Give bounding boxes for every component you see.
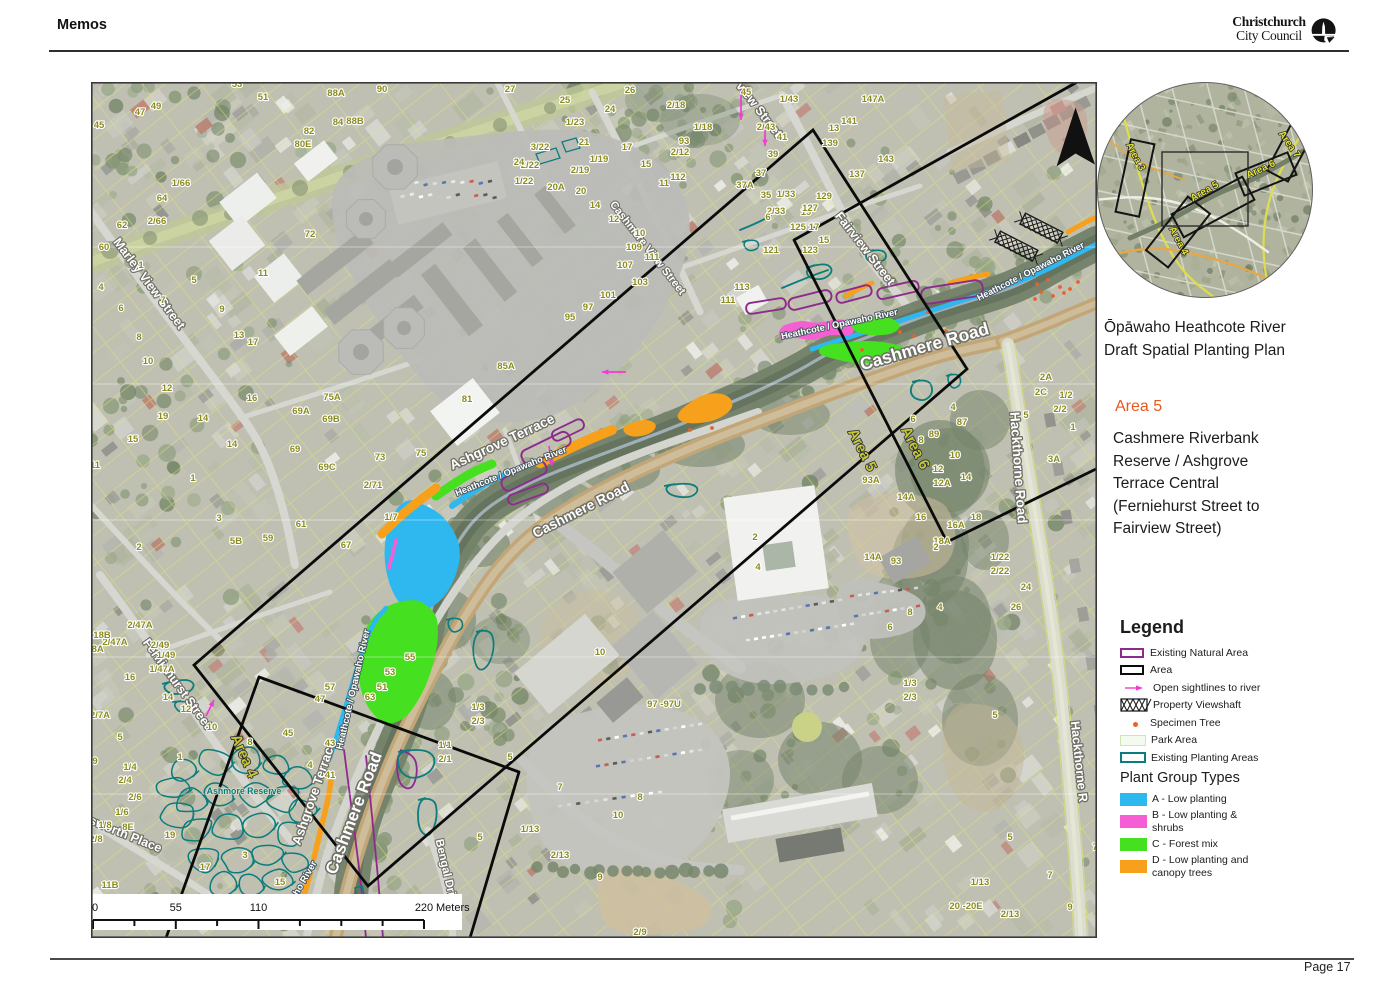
svg-text:2/7A: 2/7A [91, 710, 110, 721]
svg-text:2A: 2A [1040, 372, 1052, 383]
svg-text:51: 51 [258, 92, 269, 103]
svg-text:51: 51 [377, 682, 388, 693]
svg-text:60: 60 [99, 242, 110, 253]
svg-text:35: 35 [761, 190, 772, 201]
svg-text:1/8: 1/8 [98, 820, 111, 831]
svg-text:14A: 14A [864, 552, 882, 563]
svg-text:1: 1 [177, 752, 183, 763]
svg-text:10: 10 [595, 647, 606, 658]
svg-text:111: 111 [645, 252, 661, 263]
svg-text:121: 121 [763, 245, 780, 256]
svg-text:18: 18 [971, 512, 982, 523]
svg-text:80E: 80E [295, 139, 312, 150]
svg-text:2/47A: 2/47A [127, 620, 152, 631]
svg-text:7: 7 [1047, 870, 1052, 881]
svg-text:69A: 69A [292, 406, 310, 417]
svg-text:1/4: 1/4 [123, 762, 137, 773]
svg-text:3: 3 [216, 513, 221, 524]
svg-text:64: 64 [157, 193, 168, 204]
svg-text:69: 69 [290, 444, 301, 455]
svg-text:141: 141 [841, 116, 858, 127]
svg-text:55: 55 [405, 652, 416, 663]
svg-text:26: 26 [625, 85, 636, 96]
svg-text:2/71: 2/71 [364, 480, 383, 491]
svg-text:1/18: 1/18 [694, 122, 713, 133]
svg-text:17: 17 [200, 862, 211, 873]
svg-text:93: 93 [679, 136, 690, 147]
svg-text:14: 14 [961, 472, 972, 483]
svg-text:1/6: 1/6 [115, 807, 128, 818]
svg-text:85A: 85A [497, 361, 515, 372]
svg-text:8: 8 [907, 607, 912, 618]
svg-text:20 -20E: 20 -20E [949, 901, 982, 912]
svg-text:12: 12 [162, 383, 173, 394]
svg-text:59: 59 [263, 533, 274, 544]
svg-text:2/4: 2/4 [118, 775, 132, 786]
svg-text:2/19: 2/19 [571, 165, 590, 176]
svg-text:8E: 8E [122, 822, 134, 833]
svg-text:2/2: 2/2 [1053, 404, 1066, 415]
svg-text:97: 97 [583, 302, 594, 313]
svg-text:12: 12 [181, 704, 192, 715]
svg-text:55: 55 [170, 902, 182, 914]
svg-text:84: 84 [333, 117, 344, 128]
svg-text:13: 13 [234, 330, 245, 341]
svg-text:16: 16 [125, 672, 136, 683]
svg-text:3A: 3A [1048, 454, 1060, 465]
svg-text:2C: 2C [1035, 387, 1047, 398]
svg-text:37A: 37A [736, 180, 754, 191]
svg-text:12: 12 [609, 214, 620, 225]
svg-text:1/22: 1/22 [515, 176, 534, 187]
svg-text:1: 1 [138, 260, 144, 271]
svg-text:1/33: 1/33 [777, 189, 796, 200]
svg-text:17: 17 [809, 222, 820, 233]
svg-text:2: 2 [933, 542, 938, 553]
svg-text:8: 8 [918, 435, 923, 446]
svg-text:6: 6 [887, 622, 892, 633]
svg-text:75: 75 [416, 448, 427, 459]
svg-text:8: 8 [136, 332, 141, 343]
svg-text:8: 8 [247, 737, 252, 748]
svg-text:125: 125 [790, 222, 807, 233]
svg-text:4: 4 [307, 760, 313, 771]
svg-text:47: 47 [135, 107, 146, 118]
svg-text:1/13: 1/13 [521, 824, 540, 835]
svg-text:5B: 5B [230, 536, 242, 547]
svg-text:82: 82 [304, 126, 315, 137]
svg-text:9: 9 [1067, 902, 1072, 913]
svg-text:37: 37 [756, 168, 767, 179]
svg-text:15: 15 [641, 159, 652, 170]
svg-text:69C: 69C [318, 462, 336, 473]
svg-text:10: 10 [950, 450, 961, 461]
svg-text:18B: 18B [93, 630, 111, 641]
svg-text:69B: 69B [322, 414, 340, 425]
svg-text:14: 14 [590, 200, 601, 211]
svg-text:13: 13 [829, 123, 840, 134]
svg-text:87: 87 [957, 417, 968, 428]
svg-text:9: 9 [92, 756, 97, 767]
svg-text:97 -97U: 97 -97U [647, 699, 681, 710]
svg-text:Ashmore Reserve: Ashmore Reserve [207, 786, 282, 796]
svg-text:147A: 147A [862, 94, 885, 105]
svg-text:16: 16 [247, 393, 258, 404]
svg-text:47: 47 [315, 694, 326, 705]
svg-text:113: 113 [734, 282, 749, 293]
svg-text:1/22: 1/22 [991, 552, 1010, 563]
svg-text:16A: 16A [947, 520, 965, 531]
svg-text:88B: 88B [346, 116, 364, 127]
svg-text:10: 10 [207, 722, 218, 733]
svg-text:5: 5 [477, 832, 483, 843]
svg-text:3/22: 3/22 [531, 142, 550, 153]
svg-text:2/3: 2/3 [471, 716, 484, 727]
svg-text:16: 16 [916, 512, 927, 523]
svg-text:14: 14 [227, 439, 238, 450]
svg-text:17: 17 [248, 337, 259, 348]
svg-text:2/12: 2/12 [671, 147, 690, 158]
svg-text:2/43: 2/43 [757, 122, 776, 133]
svg-text:43: 43 [325, 738, 336, 749]
svg-text:95: 95 [565, 312, 576, 323]
svg-text:11: 11 [258, 268, 269, 279]
svg-text:10: 10 [613, 810, 624, 821]
svg-text:127: 127 [802, 203, 818, 214]
svg-text:1: 1 [1070, 422, 1076, 433]
svg-text:19: 19 [165, 830, 176, 841]
svg-text:11B: 11B [102, 880, 119, 891]
svg-text:2/9: 2/9 [633, 927, 646, 938]
svg-text:27: 27 [505, 84, 516, 95]
svg-text:10: 10 [635, 228, 646, 239]
svg-text:1/66: 1/66 [172, 178, 191, 189]
svg-text:25: 25 [560, 95, 571, 106]
svg-text:2/22: 2/22 [991, 566, 1010, 577]
svg-text:2/3: 2/3 [903, 692, 916, 703]
svg-text:1/2: 1/2 [1059, 390, 1072, 401]
svg-text:6: 6 [910, 414, 915, 425]
svg-text:20A: 20A [547, 182, 565, 193]
svg-text:89: 89 [929, 429, 940, 440]
svg-text:8: 8 [637, 792, 642, 803]
svg-text:139: 139 [822, 138, 838, 149]
svg-text:75A: 75A [323, 392, 341, 403]
svg-text:39: 39 [768, 149, 779, 160]
svg-text:41: 41 [325, 770, 336, 781]
svg-text:20: 20 [576, 186, 587, 197]
svg-text:2/66: 2/66 [148, 216, 167, 227]
svg-text:57: 57 [325, 682, 336, 693]
svg-text:11: 11 [659, 178, 670, 189]
svg-text:15: 15 [819, 235, 830, 246]
svg-text:12: 12 [933, 464, 944, 475]
svg-text:21: 21 [579, 137, 590, 148]
svg-text:Meters: Meters [436, 902, 470, 914]
svg-text:6: 6 [765, 212, 770, 223]
svg-text:2/8: 2/8 [91, 834, 103, 845]
svg-text:4: 4 [755, 562, 761, 573]
svg-text:4: 4 [950, 402, 956, 413]
svg-text:107: 107 [617, 260, 633, 271]
svg-text:18A: 18A [91, 644, 104, 655]
svg-text:0: 0 [92, 902, 98, 914]
svg-text:5: 5 [117, 732, 123, 743]
svg-text:72: 72 [305, 229, 316, 240]
svg-text:1/7: 1/7 [384, 512, 397, 523]
svg-text:19: 19 [158, 411, 169, 422]
svg-text:2/13: 2/13 [1001, 909, 1020, 920]
svg-text:5: 5 [1007, 832, 1013, 843]
svg-text:109: 109 [626, 242, 642, 253]
svg-text:5: 5 [1023, 410, 1029, 421]
svg-text:90: 90 [377, 84, 388, 95]
svg-text:24: 24 [605, 104, 616, 115]
svg-text:41: 41 [777, 132, 788, 143]
svg-text:1/49: 1/49 [157, 650, 176, 661]
svg-text:2: 2 [752, 532, 757, 543]
svg-text:73: 73 [375, 452, 386, 463]
svg-text:111: 111 [721, 295, 737, 306]
svg-text:101: 101 [600, 290, 617, 301]
svg-text:2/18: 2/18 [667, 100, 686, 111]
svg-text:5: 5 [191, 275, 197, 286]
svg-text:7: 7 [160, 295, 165, 306]
svg-text:26: 26 [1011, 602, 1022, 613]
svg-text:9: 9 [597, 872, 602, 883]
svg-text:88A: 88A [327, 88, 345, 99]
svg-text:143: 143 [878, 154, 894, 165]
svg-text:81: 81 [462, 394, 473, 405]
svg-text:220: 220 [415, 902, 433, 914]
svg-text:14: 14 [198, 413, 209, 424]
svg-text:2/6: 2/6 [128, 792, 141, 803]
svg-text:2/13: 2/13 [551, 850, 570, 861]
svg-text:62: 62 [117, 220, 128, 231]
svg-text:93: 93 [891, 556, 902, 567]
svg-text:24: 24 [1021, 582, 1032, 593]
svg-text:1/3: 1/3 [903, 678, 916, 689]
svg-text:67: 67 [341, 540, 352, 551]
svg-text:1/47A: 1/47A [149, 664, 174, 675]
svg-text:63: 63 [365, 692, 376, 703]
svg-text:1/19: 1/19 [590, 154, 609, 165]
svg-text:5: 5 [507, 752, 513, 763]
svg-text:1: 1 [190, 473, 196, 484]
svg-text:45: 45 [283, 728, 294, 739]
svg-text:103: 103 [632, 277, 648, 288]
svg-text:4: 4 [98, 282, 104, 293]
svg-text:45: 45 [741, 87, 752, 98]
svg-text:1/43: 1/43 [780, 94, 799, 105]
svg-text:1/3: 1/3 [471, 702, 484, 713]
svg-text:110: 110 [250, 902, 268, 914]
svg-text:12A: 12A [933, 478, 951, 489]
svg-text:7: 7 [557, 782, 562, 793]
svg-text:5: 5 [992, 710, 998, 721]
svg-text:15: 15 [275, 877, 286, 888]
svg-text:1/13: 1/13 [971, 877, 990, 888]
svg-text:3: 3 [242, 850, 247, 861]
svg-text:24: 24 [514, 157, 525, 168]
svg-text:49: 49 [151, 101, 162, 112]
svg-text:14: 14 [163, 692, 174, 703]
svg-text:123: 123 [802, 245, 818, 256]
svg-text:1/1: 1/1 [438, 740, 452, 751]
svg-text:4: 4 [937, 602, 943, 613]
svg-text:93A: 93A [862, 475, 880, 486]
svg-text:45: 45 [94, 120, 105, 131]
svg-text:2/1: 2/1 [438, 754, 452, 765]
svg-text:6: 6 [118, 303, 123, 314]
svg-text:129: 129 [816, 191, 832, 202]
svg-text:2: 2 [136, 542, 141, 553]
svg-text:10: 10 [143, 356, 154, 367]
svg-text:61: 61 [296, 519, 307, 530]
svg-text:9: 9 [219, 304, 224, 315]
svg-text:137: 137 [849, 169, 865, 180]
svg-text:14A: 14A [897, 492, 915, 503]
svg-text:53: 53 [385, 667, 396, 678]
svg-text:1/23: 1/23 [566, 117, 585, 128]
svg-text:15: 15 [128, 434, 139, 445]
svg-text:17: 17 [622, 142, 633, 153]
svg-text:112: 112 [670, 172, 685, 183]
